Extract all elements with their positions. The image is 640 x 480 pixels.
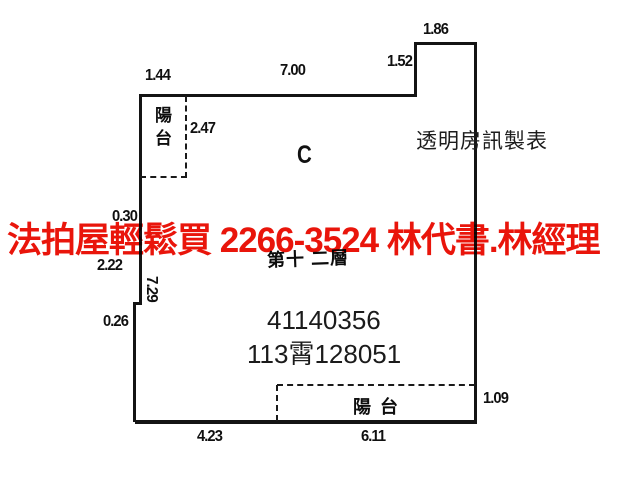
dim-left-long: 7.29 [142, 276, 160, 302]
watermark-text: 法拍屋輕鬆買 2266-3524 林代書.林經理 [7, 212, 640, 263]
dim-bottom-left-width: 4.23 [197, 428, 222, 446]
registry-number: 113霄128051 [247, 334, 401, 371]
unit-label: C [297, 141, 312, 170]
balcony-bottom-dashed-top [277, 384, 475, 386]
dim-balcony-top-depth: 2.47 [190, 120, 215, 138]
wall-top-step-horizontal [414, 42, 477, 45]
balcony-top-dashed-right [185, 96, 187, 178]
dim-top-step-width: 1.86 [423, 21, 448, 39]
dim-top-step-height: 1.52 [387, 53, 412, 71]
dim-bottom-balcony-depth: 1.09 [483, 390, 508, 408]
dim-top-main-width: 7.00 [280, 62, 305, 80]
wall-top [139, 94, 417, 97]
dim-bottom-balcony-width: 6.11 [361, 428, 385, 446]
dim-top-balcony-width: 1.44 [145, 67, 170, 85]
maker-label: 透明房訊製表 [416, 125, 548, 155]
floorplan-canvas: 陽台 陽台 1.44 7.00 1.86 1.52 2.47 0.30 2.22… [0, 0, 640, 480]
wall-bottom [135, 420, 477, 424]
wall-left-upper [139, 94, 142, 305]
balcony-top-dashed-bottom [140, 176, 187, 178]
balcony-top-label: 陽台 [149, 106, 174, 152]
balcony-bottom-dashed-left [276, 385, 278, 421]
dim-left-small-step: 0.26 [103, 313, 128, 331]
building-number: 41140356 [267, 305, 381, 336]
wall-top-step-vertical [414, 43, 417, 97]
balcony-bottom-label: 陽台 [353, 393, 407, 419]
wall-left-lower [133, 302, 136, 422]
